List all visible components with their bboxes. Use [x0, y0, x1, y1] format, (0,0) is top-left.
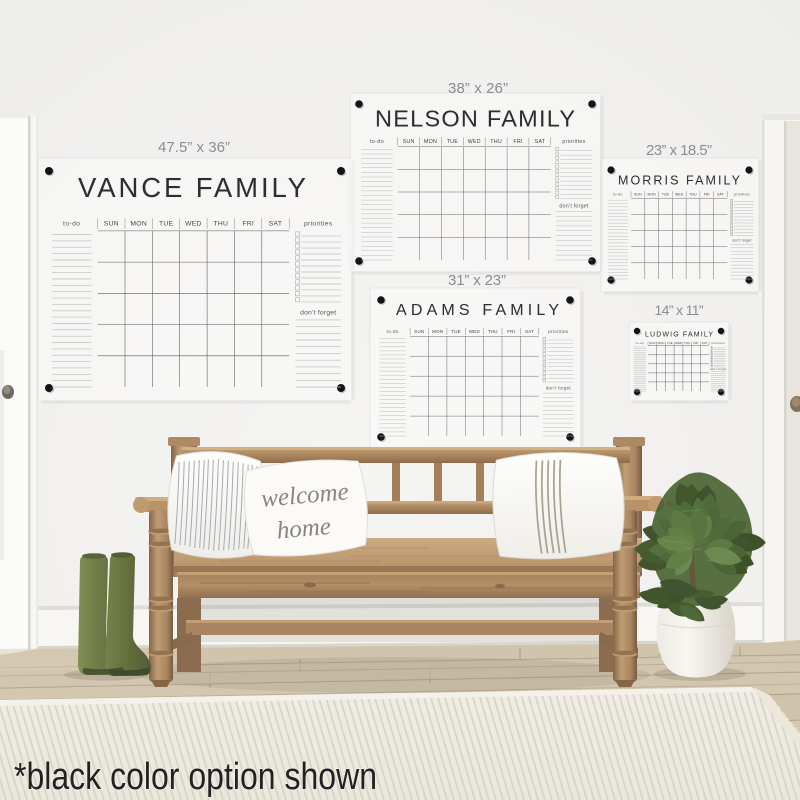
svg-text:SAT: SAT — [717, 192, 724, 196]
svg-text:SUN: SUN — [403, 139, 415, 145]
svg-text:23” x 18.5”: 23” x 18.5” — [646, 142, 712, 159]
svg-text:38” x 26”: 38” x 26” — [448, 80, 508, 97]
svg-text:priorities: priorities — [304, 221, 333, 228]
svg-text:MON: MON — [648, 192, 657, 196]
svg-text:THU: THU — [213, 221, 228, 228]
svg-text:to-do: to-do — [636, 341, 644, 345]
svg-text:don’t forget: don’t forget — [710, 367, 726, 371]
svg-text:don’t forget: don’t forget — [300, 309, 336, 316]
svg-text:SUN: SUN — [104, 221, 119, 228]
svg-text:THU: THU — [488, 329, 498, 334]
svg-text:TUE: TUE — [451, 329, 461, 334]
svg-text:SAT: SAT — [269, 221, 282, 228]
svg-text:THU: THU — [684, 341, 690, 345]
svg-text:TUE: TUE — [159, 221, 174, 228]
svg-text:SUN: SUN — [649, 341, 655, 345]
svg-text:to-do: to-do — [63, 221, 80, 228]
svg-text:to-do: to-do — [613, 192, 623, 196]
svg-text:NELSON FAMILY: NELSON FAMILY — [375, 106, 575, 132]
svg-text:home: home — [276, 513, 332, 545]
svg-text:FRI: FRI — [513, 139, 522, 145]
svg-text:FRI: FRI — [693, 341, 698, 345]
svg-text:priorities: priorities — [548, 329, 569, 334]
svg-text:WED: WED — [675, 192, 684, 196]
svg-text:don’t forget: don’t forget — [546, 386, 572, 391]
svg-text:TUE: TUE — [447, 139, 459, 145]
svg-text:don’t forget: don’t forget — [732, 238, 751, 242]
svg-text:WED: WED — [675, 341, 682, 345]
svg-text:WED: WED — [185, 221, 202, 228]
svg-text:to-do: to-do — [370, 139, 384, 145]
svg-text:31” x 23”: 31” x 23” — [448, 272, 506, 289]
svg-text:SAT: SAT — [535, 139, 546, 145]
svg-text:SAT: SAT — [525, 329, 534, 334]
svg-text:FRI: FRI — [242, 221, 254, 228]
svg-text:TUE: TUE — [662, 192, 670, 196]
svg-text:TUE: TUE — [667, 341, 673, 345]
svg-text:FRI: FRI — [704, 192, 710, 196]
svg-text:MON: MON — [424, 139, 437, 145]
svg-text:priorities: priorities — [711, 341, 725, 345]
svg-text:VANCE FAMILY: VANCE FAMILY — [78, 172, 306, 203]
svg-text:priorities: priorities — [734, 192, 750, 196]
svg-text:SUN: SUN — [414, 329, 424, 334]
svg-text:WED: WED — [469, 329, 481, 334]
svg-text:WED: WED — [468, 139, 481, 145]
svg-text:THU: THU — [490, 139, 502, 145]
svg-text:SUN: SUN — [634, 192, 642, 196]
svg-text:47.5” x 36”: 47.5” x 36” — [158, 139, 230, 156]
svg-text:don’t forget: don’t forget — [559, 203, 589, 209]
svg-text:MON: MON — [432, 329, 443, 334]
svg-text:THU: THU — [689, 192, 697, 196]
svg-text:*black color option shown: *black color option shown — [14, 756, 377, 798]
svg-text:SAT: SAT — [702, 341, 708, 345]
svg-text:MON: MON — [130, 221, 147, 228]
svg-text:priorities: priorities — [562, 139, 585, 145]
svg-text:FRI: FRI — [507, 329, 515, 334]
svg-text:MON: MON — [658, 341, 665, 345]
svg-text:14” x 11”: 14” x 11” — [655, 302, 704, 318]
svg-text:to-do: to-do — [387, 329, 399, 334]
